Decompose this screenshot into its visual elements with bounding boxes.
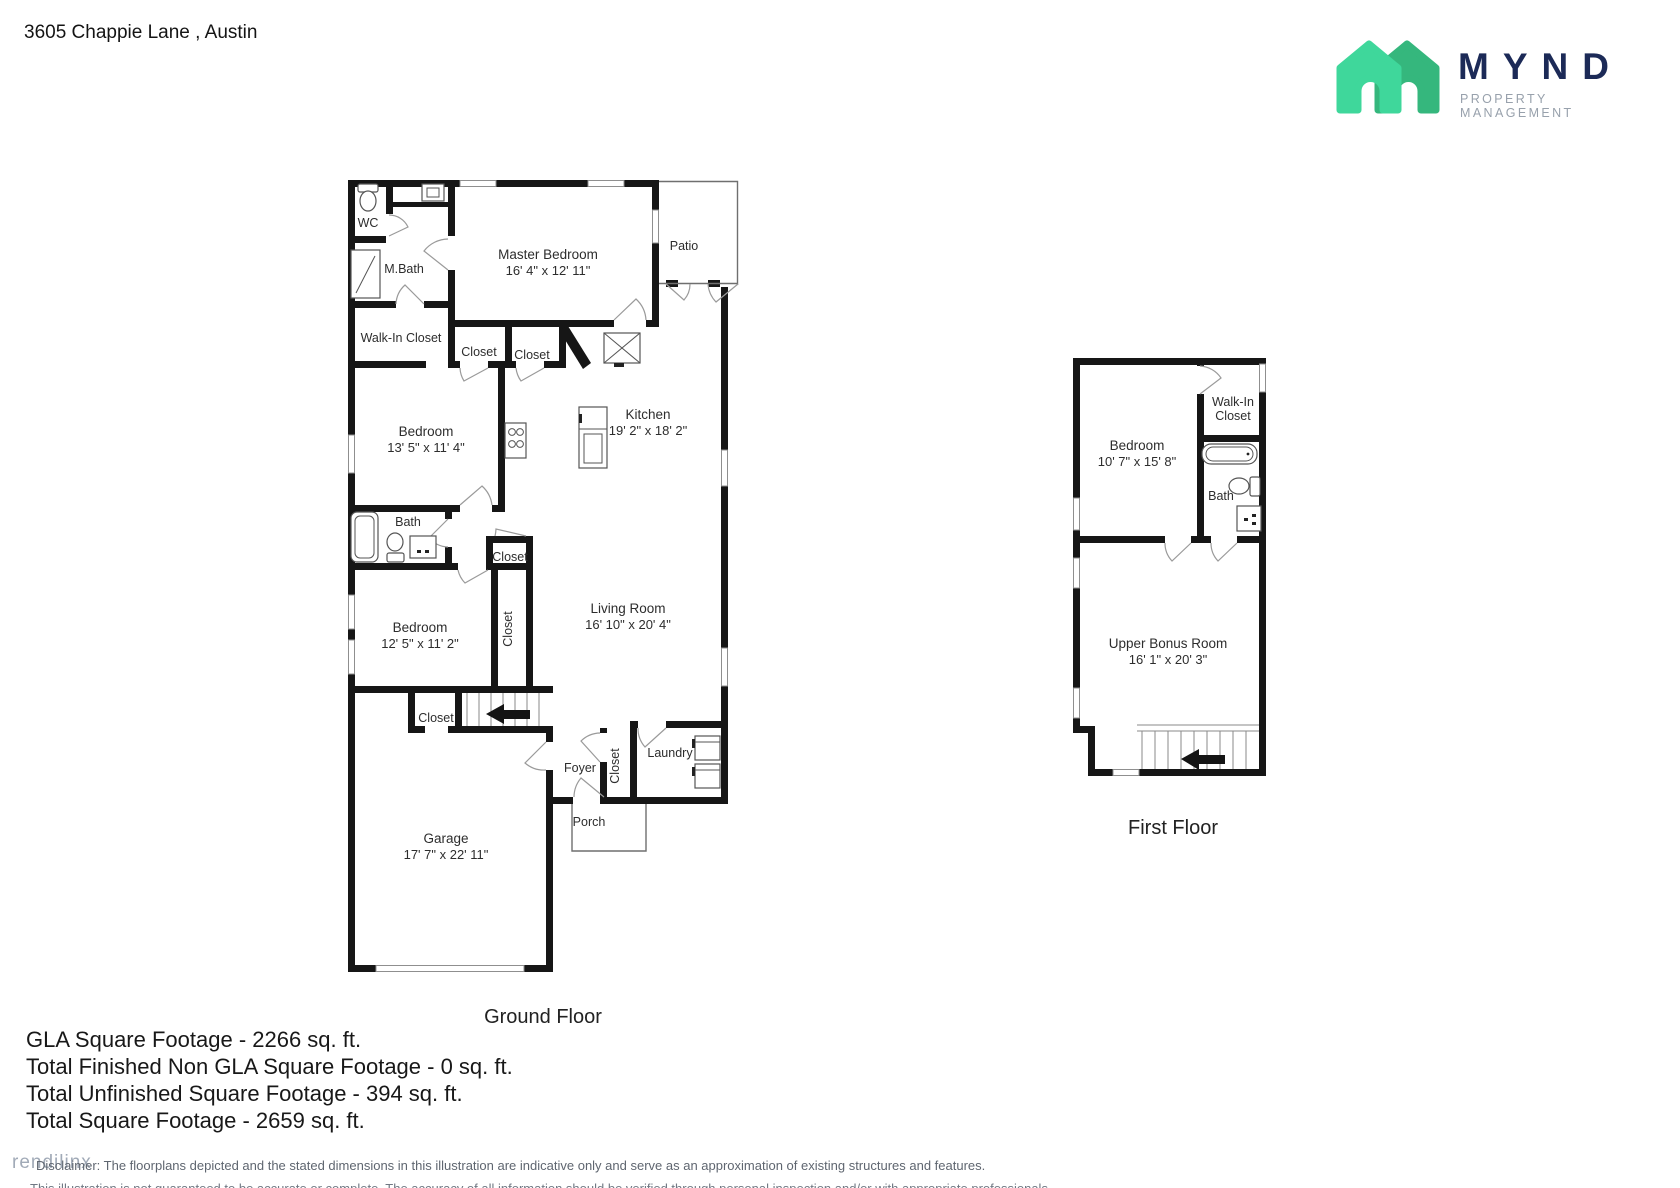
vanity-sink-icon [422,184,444,201]
room-label-master-bedroom: Master Bedroom [498,247,598,262]
room-label-walk-in-closet: Walk-In Closet [361,331,442,345]
first-stairs [1137,725,1259,770]
bath-sink-icon [410,536,436,558]
mynd-wordmark: MYND [1458,46,1623,88]
first-floor-plan: Bedroom 10' 7" x 15' 8" Walk-In Closet B… [1073,358,1273,790]
stairs-direction-arrow [1181,749,1225,770]
room-label-patio: Patio [670,239,699,253]
dryer-icon [695,764,720,788]
first-windows [1074,364,1266,776]
room-label-walk-in-line1: Walk-In [1212,395,1254,409]
mynd-logo: MYND PROPERTY MANAGEMENT [1336,34,1666,118]
property-address: 3605 Chappie Lane , Austin [24,22,257,44]
room-label-upper-bonus: Upper Bonus Room [1109,636,1228,651]
floorplan-page: 3605 Chappie Lane , Austin MYND PROPERTY… [0,0,1680,1188]
mynd-houses-icon [1336,36,1440,114]
stove-icon [505,423,526,458]
room-dims-living-room: 16' 10" x 20' 4" [585,617,671,632]
room-dims-upper-bonus: 16' 1" x 20' 3" [1129,652,1208,667]
room-label-closet3: Closet [492,550,528,564]
room-label-walk-in-line2: Closet [1215,409,1251,423]
sink-icon [1237,506,1261,531]
gla-square-footage: GLA Square Footage - 2266 sq. ft. [26,1026,513,1053]
room-label-wc: WC [358,216,379,230]
first-floor-title: First Floor [1063,817,1283,840]
room-label-foyer: Foyer [564,761,596,775]
ground-stairs [467,693,539,726]
fridge-counter-icon [579,407,607,468]
room-label-closet1: Closet [461,345,497,359]
room-label-bedroom3: Bedroom [393,620,448,635]
bath-toilet-icon [387,533,403,551]
wc-toilet-bowl-icon [360,191,376,211]
room-dims-master-bedroom: 16' 4" x 12' 11" [506,263,591,278]
washer-icon [695,736,720,760]
room-label-bath: Bath [395,515,421,529]
room-label-bedroom2: Bedroom [399,424,454,439]
mynd-tagline: PROPERTY MANAGEMENT [1460,92,1666,120]
first-fixtures [1202,444,1261,531]
total-square-footage: Total Square Footage - 2659 sq. ft. [26,1107,513,1134]
disclaimer-line2: This illustration is not guaranteed to b… [30,1181,1052,1188]
room-label-kitchen: Kitchen [625,407,670,422]
room-label-mbath: M.Bath [384,262,424,276]
disclaimer-line1: Disclaimer: The floorplans depicted and … [36,1158,985,1173]
room-label-living-room: Living Room [590,601,665,616]
room-dims-bedroom: 10' 7" x 15' 8" [1098,454,1177,469]
room-label-laundry: Laundry [647,746,693,760]
room-dims-bedroom3: 12' 5" x 11' 2" [381,636,459,651]
room-label-porch: Porch [573,815,606,829]
room-label-closet2: Closet [514,348,550,362]
non-gla-square-footage: Total Finished Non GLA Square Footage - … [26,1053,513,1080]
unfinished-square-footage: Total Unfinished Square Footage - 394 sq… [26,1080,513,1107]
room-dims-kitchen: 19' 2" x 18' 2" [609,423,688,438]
room-dims-garage: 17' 7" x 22' 11" [404,847,489,862]
room-label-bath: Bath [1208,489,1234,503]
stairs-direction-arrow [486,704,530,724]
room-label-closet4-vertical: Closet [501,611,515,647]
room-label-garage: Garage [423,831,468,846]
patio-outline [659,182,738,286]
room-label-closet5: Closet [418,711,454,725]
room-dims-bedroom2: 13' 5" x 11' 4" [387,440,465,455]
room-label-closet6-vertical: Closet [608,748,622,784]
square-footage-summary: GLA Square Footage - 2266 sq. ft. Total … [26,1026,513,1134]
ground-floor-plan: WC M.Bath Walk-In Closet Master Bedroom … [348,180,739,972]
room-label-bedroom: Bedroom [1110,438,1165,453]
